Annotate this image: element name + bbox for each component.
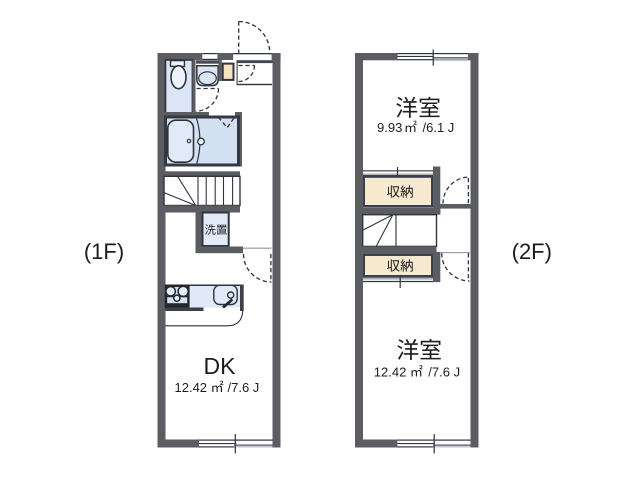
svg-text:/6.1 J: /6.1 J [423,120,455,135]
svg-text:12.42: 12.42 [175,380,208,395]
svg-text:/7.6 J: /7.6 J [228,380,260,395]
svg-text:(1F): (1F) [84,239,124,264]
svg-text:(2F): (2F) [512,239,552,264]
svg-text:DK: DK [204,353,237,379]
svg-text:12.42: 12.42 [374,365,407,380]
svg-text:9.93: 9.93 [377,120,402,135]
svg-text:/7.6 J: /7.6 J [428,365,460,380]
